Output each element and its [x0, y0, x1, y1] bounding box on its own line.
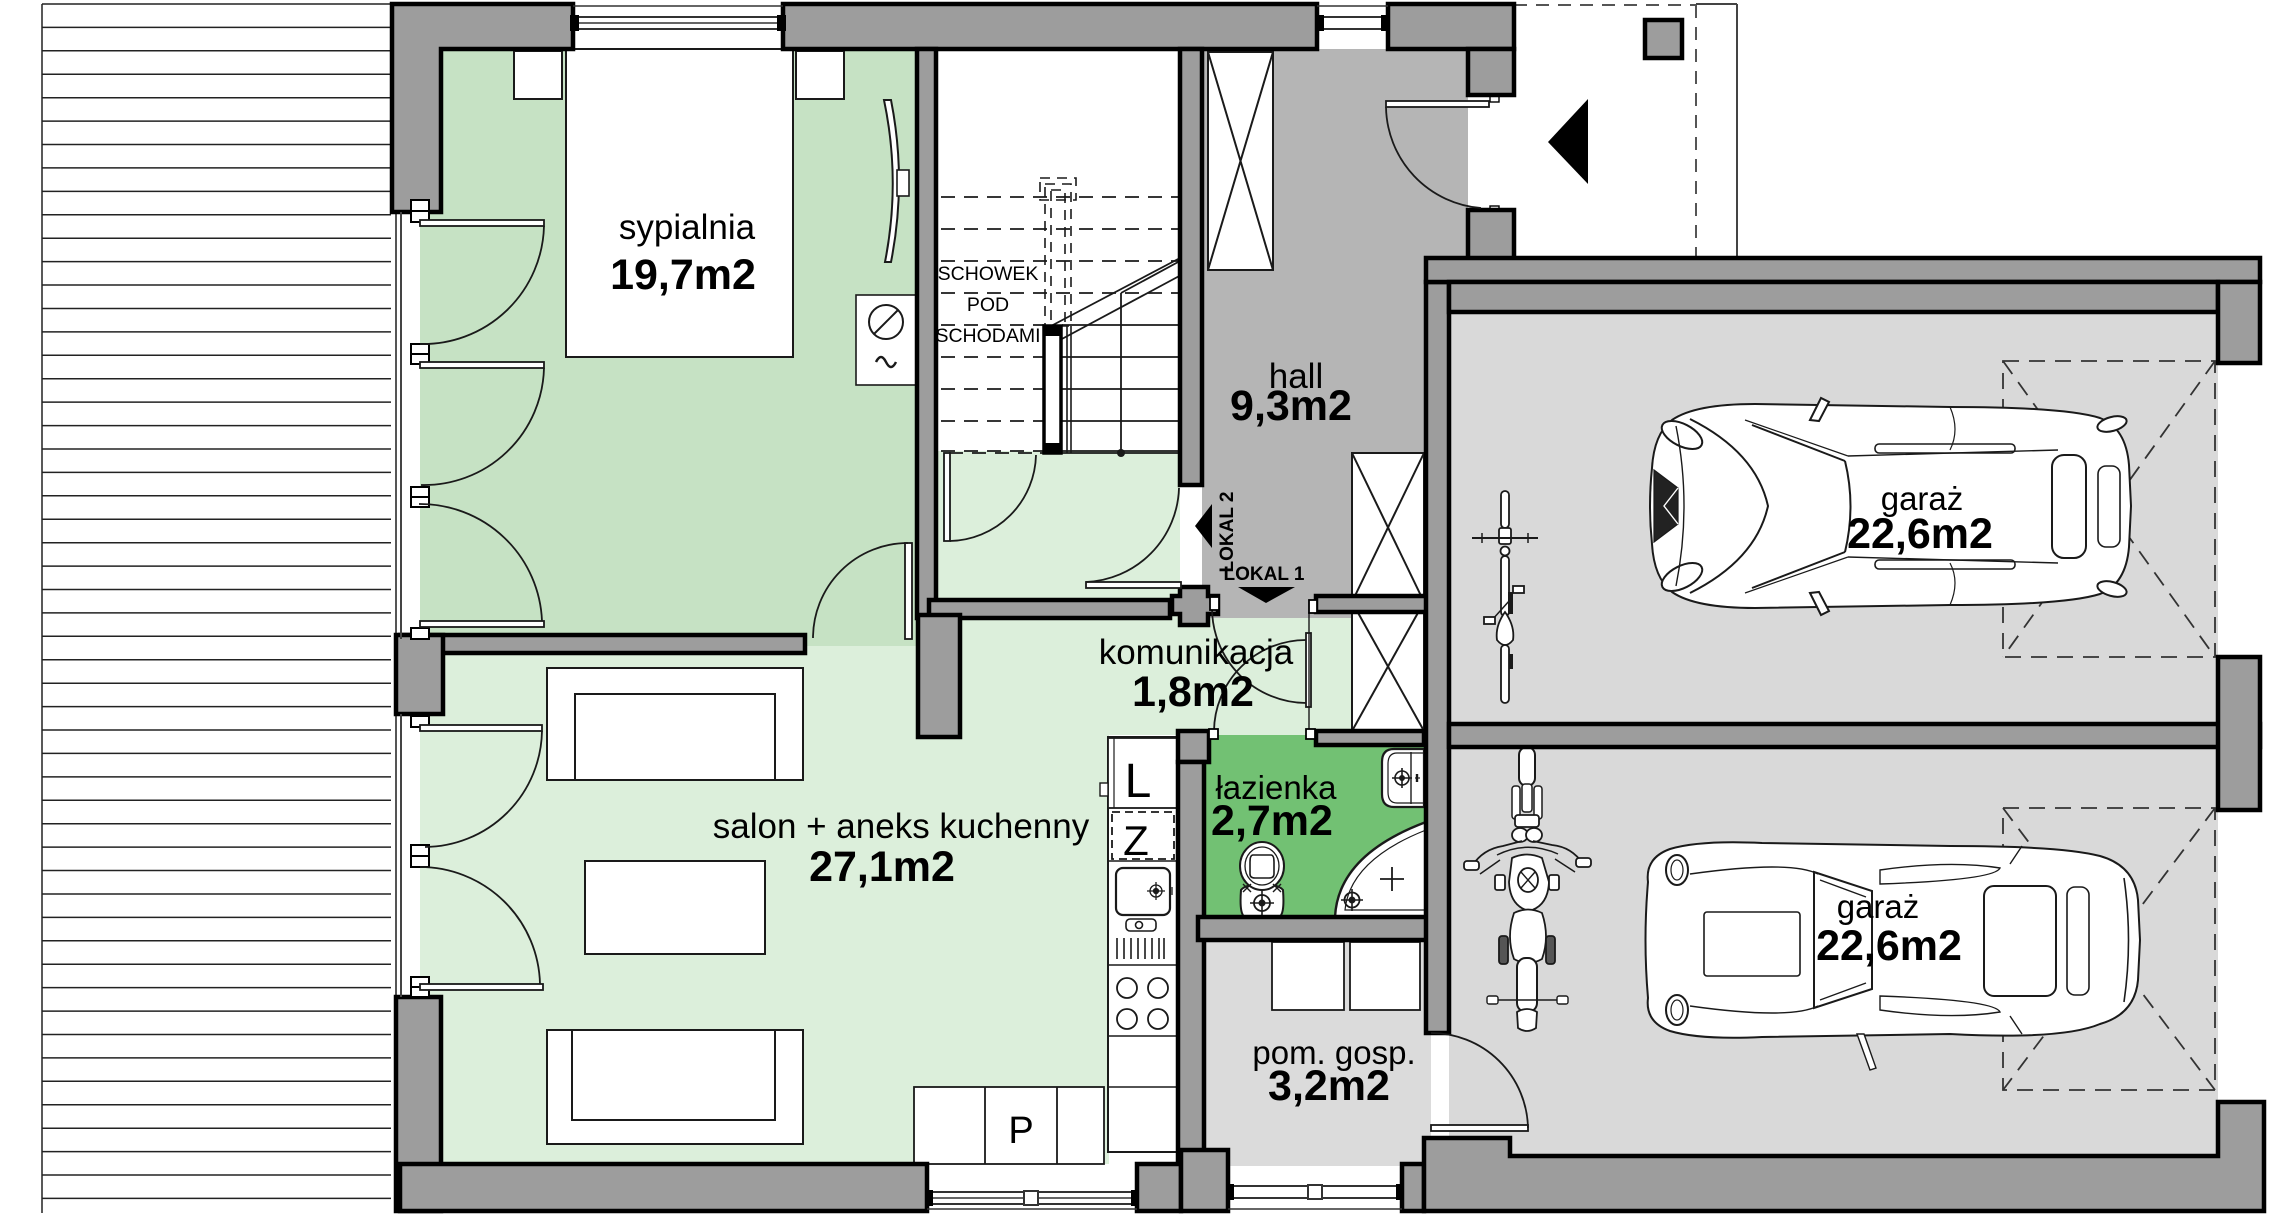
svg-text:1,8m2: 1,8m2	[1132, 668, 1254, 716]
svg-text:Z: Z	[1123, 817, 1149, 864]
svg-text:22,6m2: 22,6m2	[1847, 510, 1993, 558]
svg-text:SCHODAMI: SCHODAMI	[935, 325, 1040, 347]
svg-text:LOKAL 1: LOKAL 1	[1224, 564, 1305, 585]
svg-text:27,1m2: 27,1m2	[809, 843, 955, 891]
svg-text:P: P	[1008, 1110, 1033, 1152]
svg-text:19,7m2: 19,7m2	[610, 251, 756, 299]
svg-text:salon + aneks kuchenny: salon + aneks kuchenny	[713, 807, 1090, 846]
svg-text:L: L	[1125, 755, 1152, 808]
svg-text:LOKAL 2: LOKAL 2	[1217, 492, 1238, 573]
svg-text:POD: POD	[967, 294, 1009, 316]
svg-text:sypialnia: sypialnia	[619, 208, 756, 247]
svg-text:3,2m2: 3,2m2	[1268, 1062, 1390, 1110]
svg-text:9,3m2: 9,3m2	[1230, 382, 1352, 430]
svg-text:22,6m2: 22,6m2	[1816, 922, 1962, 970]
svg-text:SCHOWEK: SCHOWEK	[938, 263, 1039, 285]
svg-text:garaż: garaż	[1837, 888, 1920, 925]
svg-text:komunikacja: komunikacja	[1099, 633, 1294, 672]
svg-text:2,7m2: 2,7m2	[1211, 797, 1333, 845]
